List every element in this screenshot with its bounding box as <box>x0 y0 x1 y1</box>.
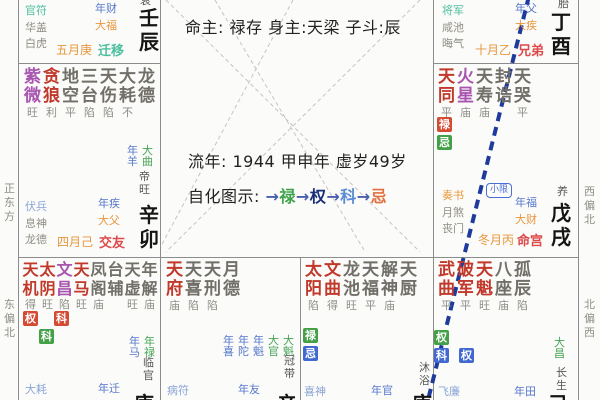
palace-minggong[interactable]: 天同平火星庙天寿庙封诰天哭平 禄忌 小限 奏书月煞丧门 年福大财 冬月丙 命宫 … <box>434 64 578 257</box>
label-line: 官符 <box>25 3 47 20</box>
star: 贪狼利 <box>42 68 61 120</box>
label-line: 年财 <box>95 1 117 18</box>
star: 天厨 <box>399 261 418 313</box>
badge-row: 禄 <box>437 117 452 135</box>
palace-qianyi[interactable]: 官符华盖白虎 年财大福 五月庚 迁移 衰 壬辰 <box>19 0 160 63</box>
star: 天魁旺 <box>475 261 494 313</box>
sihua-badges: 权科权 <box>434 330 474 366</box>
sihua-badges: 禄忌 <box>437 117 452 153</box>
direction-label-east: 正东方 <box>3 182 16 224</box>
flow-star-pairs: 年马年禄 <box>127 330 157 358</box>
star: 天刑陷 <box>203 261 222 313</box>
label-line: 年父 <box>515 1 537 18</box>
label-line: 龙德 <box>25 232 47 249</box>
flow-pair: 年羊 <box>125 145 140 167</box>
sihua-badge: 禄 <box>437 117 452 132</box>
label-line: 丧门 <box>442 221 464 238</box>
label-line: 咸池 <box>442 20 464 37</box>
label-line: 华盖 <box>25 20 47 37</box>
palace-xiongdi[interactable]: 将军咸池晦气 年父大疾 十月乙 兄弟 胎 丁酉 <box>434 0 578 63</box>
flow-pair: 大官 <box>266 335 281 357</box>
label-line: 息神 <box>25 216 47 233</box>
longevity-stage: 临官 <box>142 356 155 382</box>
star-list: 紫微旺贪狼利地空平三台陷天伤陷大耗不龙德 <box>23 67 156 120</box>
palace-name: 兄弟 <box>518 40 544 59</box>
sihua-badge: 禄 <box>303 328 318 343</box>
star: 大耗不 <box>118 68 137 120</box>
month-label: 五月庚 <box>56 41 92 58</box>
label-line: 大财 <box>515 212 537 229</box>
star: 火星庙 <box>456 68 475 120</box>
arrow-icon: → <box>265 187 279 206</box>
label-line: 伏兵 <box>25 199 47 216</box>
sihua-badge: 忌 <box>303 346 318 361</box>
stem-branch: 壬辰 <box>138 6 160 54</box>
label-line: 大疾 <box>515 18 537 35</box>
star: 文昌陷 <box>56 260 73 312</box>
star: 凤阁庙 <box>90 260 107 312</box>
star-list: 天机得太阴旺文昌陷天马旺凤阁庙台辅天虚旺年解庙 <box>22 260 158 312</box>
flow-star-pairs: 大昌 <box>552 331 567 359</box>
longevity-stage: 冠带 <box>283 354 296 380</box>
label-line: 将军 <box>442 3 464 20</box>
star: 太阴旺 <box>39 260 56 312</box>
direction-label-east-north: 东偏北 <box>3 298 16 340</box>
flow-star-pairs: 年喜年陀年魁大官大魁 <box>221 329 296 357</box>
palace-name: 命宫 <box>517 230 543 249</box>
legend-lu: 禄 <box>279 187 296 206</box>
stem-branch-cut: 己 <box>548 393 570 400</box>
sihua-badges: 权科科 <box>23 311 69 347</box>
star: 天同平 <box>437 68 456 120</box>
star: 龙池旺 <box>342 261 361 313</box>
flow-labels: 年父大疾 <box>515 1 537 34</box>
star-list: 天同平火星庙天寿庙封诰天哭平 <box>437 67 532 120</box>
sihua-badges: 禄忌 <box>303 328 318 364</box>
badge-row: 忌 <box>303 346 318 364</box>
flow-labels: 年福大财 <box>515 195 537 228</box>
flow-pair: 年喜 <box>221 335 236 357</box>
star: 天虚旺 <box>124 260 141 312</box>
sihua-badge: 权 <box>459 348 474 363</box>
ming-master-line: 命主: 禄存 身主:天梁 子斗:辰 <box>185 14 401 38</box>
star: 三台陷 <box>80 68 99 120</box>
star: 天哭平 <box>513 68 532 120</box>
star-list: 天府庙天喜陷天刑陷月德 <box>165 260 241 313</box>
flow-label: 年官 <box>371 383 393 400</box>
label-line: 晦气 <box>442 36 464 53</box>
legend-ke: 科 <box>340 187 357 206</box>
palace-bottom-4[interactable]: 武曲平破军平天魁旺八座庙孤辰陷 权科权 大昌 长生 飞廉 年田 己 <box>434 258 578 400</box>
star: 地空平 <box>61 68 80 120</box>
arrow-icon: → <box>326 187 340 206</box>
month-label: 十月乙 <box>475 41 511 58</box>
star: 天伤陷 <box>99 68 118 120</box>
center-panel: 命主: 禄存 身主:天梁 子斗:辰 流年: 1944 甲申年 虚岁49岁 自化图… <box>161 0 433 257</box>
stem-branch-cut: 庚 <box>134 393 156 400</box>
flow-labels: 年疾大父 <box>98 196 120 229</box>
stem-branch-cut: 庚 <box>412 393 433 400</box>
flow-pair: 大昌 <box>552 337 567 359</box>
palace-god: 病符 <box>167 383 189 400</box>
palace-name: 迁移 <box>98 40 124 59</box>
grid-line-v-right <box>578 0 579 400</box>
star: 天寿庙 <box>475 68 494 120</box>
badge-row: 科权 <box>434 348 474 366</box>
flow-label: 年友 <box>238 382 260 399</box>
sihua-badge: 科 <box>434 348 449 363</box>
badge-row: 科 <box>23 329 69 347</box>
sihua-badge: 科 <box>39 329 54 344</box>
palace-god: 大耗 <box>25 382 47 399</box>
palace-name: 交友 <box>99 232 125 251</box>
palace-gods: 将军咸池晦气 <box>442 3 464 53</box>
longevity-stage: 沐浴 <box>418 361 431 387</box>
flow-star-pairs: 年羊大曲 <box>125 139 155 167</box>
star: 龙德 <box>137 68 156 120</box>
label-line: 年疾 <box>98 196 120 213</box>
stem-branch-cut: 辛 <box>277 393 299 400</box>
palace-gods: 伏兵息神龙德 <box>25 199 47 249</box>
month-label: 四月己 <box>57 233 93 250</box>
stem-branch: 丁酉 <box>550 10 572 58</box>
palace-god: 喜神 <box>304 384 326 400</box>
star: 台辅 <box>107 260 124 312</box>
flow-labels: 年财大福 <box>95 1 117 34</box>
label-line: 年福 <box>515 195 537 212</box>
longevity-stage: 胎 <box>557 0 570 10</box>
sihua-legend: 自化图示: →禄→权→科→忌 <box>188 183 387 207</box>
star: 年解庙 <box>141 260 158 312</box>
star: 孤辰陷 <box>513 261 532 313</box>
badge-row: 忌 <box>437 135 452 153</box>
sihua-badge: 忌 <box>437 135 452 150</box>
star: 武曲平 <box>437 261 456 313</box>
stem-branch: 戊戌 <box>550 201 572 249</box>
star: 天福平 <box>361 261 380 313</box>
star: 月德 <box>222 261 241 313</box>
sihua-badge: 权 <box>434 330 449 345</box>
palace-bottom-3[interactable]: 太阳陷文曲得龙池旺天福平解神庙天厨 禄忌 沐浴 喜神 年官 庚 <box>301 258 433 400</box>
arrow-icon: → <box>357 187 371 206</box>
direction-label-north-west: 北偏西 <box>583 298 596 340</box>
longevity-stage: 长生 <box>555 366 568 392</box>
star: 天府庙 <box>165 261 184 313</box>
palace-jiaoyou[interactable]: 紫微旺贪狼利地空平三台陷天伤陷大耗不龙德 年羊大曲 帝旺 伏兵息神龙德 年疾大父… <box>19 64 160 257</box>
ziwei-chart: 正东方 东偏北 西偏北 北偏西 官符华盖白虎 年财大福 五月庚 迁移 衰 壬辰 … <box>0 0 600 400</box>
palace-bottom-1[interactable]: 天机得太阴旺文昌陷天马旺凤阁庙台辅天虚旺年解庙 权科科 年马年禄 临官 大耗 年… <box>19 258 160 400</box>
star: 文曲得 <box>323 261 342 313</box>
star: 紫微旺 <box>23 68 42 120</box>
star: 破军平 <box>456 261 475 313</box>
sihua-badge: 权 <box>23 311 38 326</box>
flow-pair: 年魁 <box>251 335 266 357</box>
badge-row: 权 <box>434 330 474 348</box>
legend-ji: 忌 <box>371 187 388 206</box>
flow-pair: 年马 <box>127 336 142 358</box>
star: 天马旺 <box>73 260 90 312</box>
star: 太阳陷 <box>304 261 323 313</box>
sihua-legend-label: 自化图示: <box>188 187 265 206</box>
star-list: 太阳陷文曲得龙池旺天福平解神庙天厨 <box>304 260 418 313</box>
arrow-icon: → <box>296 187 310 206</box>
badge-row: 禄 <box>303 328 318 346</box>
flow-label: 年迁 <box>98 381 120 398</box>
palace-gods: 官符华盖白虎 <box>25 3 47 53</box>
star-list: 武曲平破军平天魁旺八座庙孤辰陷 <box>437 260 532 313</box>
label-line: 奏书 <box>442 188 464 205</box>
xiaoxian-tag[interactable]: 小限 <box>486 183 512 198</box>
palace-god: 飞廉 <box>438 384 460 400</box>
sihua-badge: 科 <box>54 311 69 326</box>
flow-year-line: 流年: 1944 甲申年 虚岁49岁 <box>188 148 407 172</box>
label-line: 月煞 <box>442 205 464 222</box>
label-line: 白虎 <box>25 36 47 53</box>
star: 天机得 <box>22 260 39 312</box>
longevity-stage: 帝旺 <box>138 170 151 196</box>
flow-pair: 年陀 <box>236 335 251 357</box>
label-line: 大福 <box>95 18 117 35</box>
flow-label: 年田 <box>514 384 536 400</box>
longevity-stage: 养 <box>556 185 569 198</box>
star: 封诰 <box>494 68 513 120</box>
direction-label-west-north: 西偏北 <box>583 185 596 227</box>
label-line: 大父 <box>98 213 120 230</box>
star: 八座庙 <box>494 261 513 313</box>
legend-quan: 权 <box>310 187 327 206</box>
star: 解神庙 <box>380 261 399 313</box>
flow-pair: 年禄 <box>142 336 157 358</box>
month-label: 冬月丙 <box>478 231 514 248</box>
star: 天喜陷 <box>184 261 203 313</box>
flow-pair: 大曲 <box>140 145 155 167</box>
badge-row: 权科 <box>23 311 69 329</box>
stem-branch: 辛卯 <box>138 203 160 251</box>
palace-bottom-2[interactable]: 天府庙天喜陷天刑陷月德 年喜年陀年魁大官大魁 冠带 病符 年友 辛 <box>161 258 300 400</box>
palace-gods: 奏书月煞丧门 <box>442 188 464 238</box>
